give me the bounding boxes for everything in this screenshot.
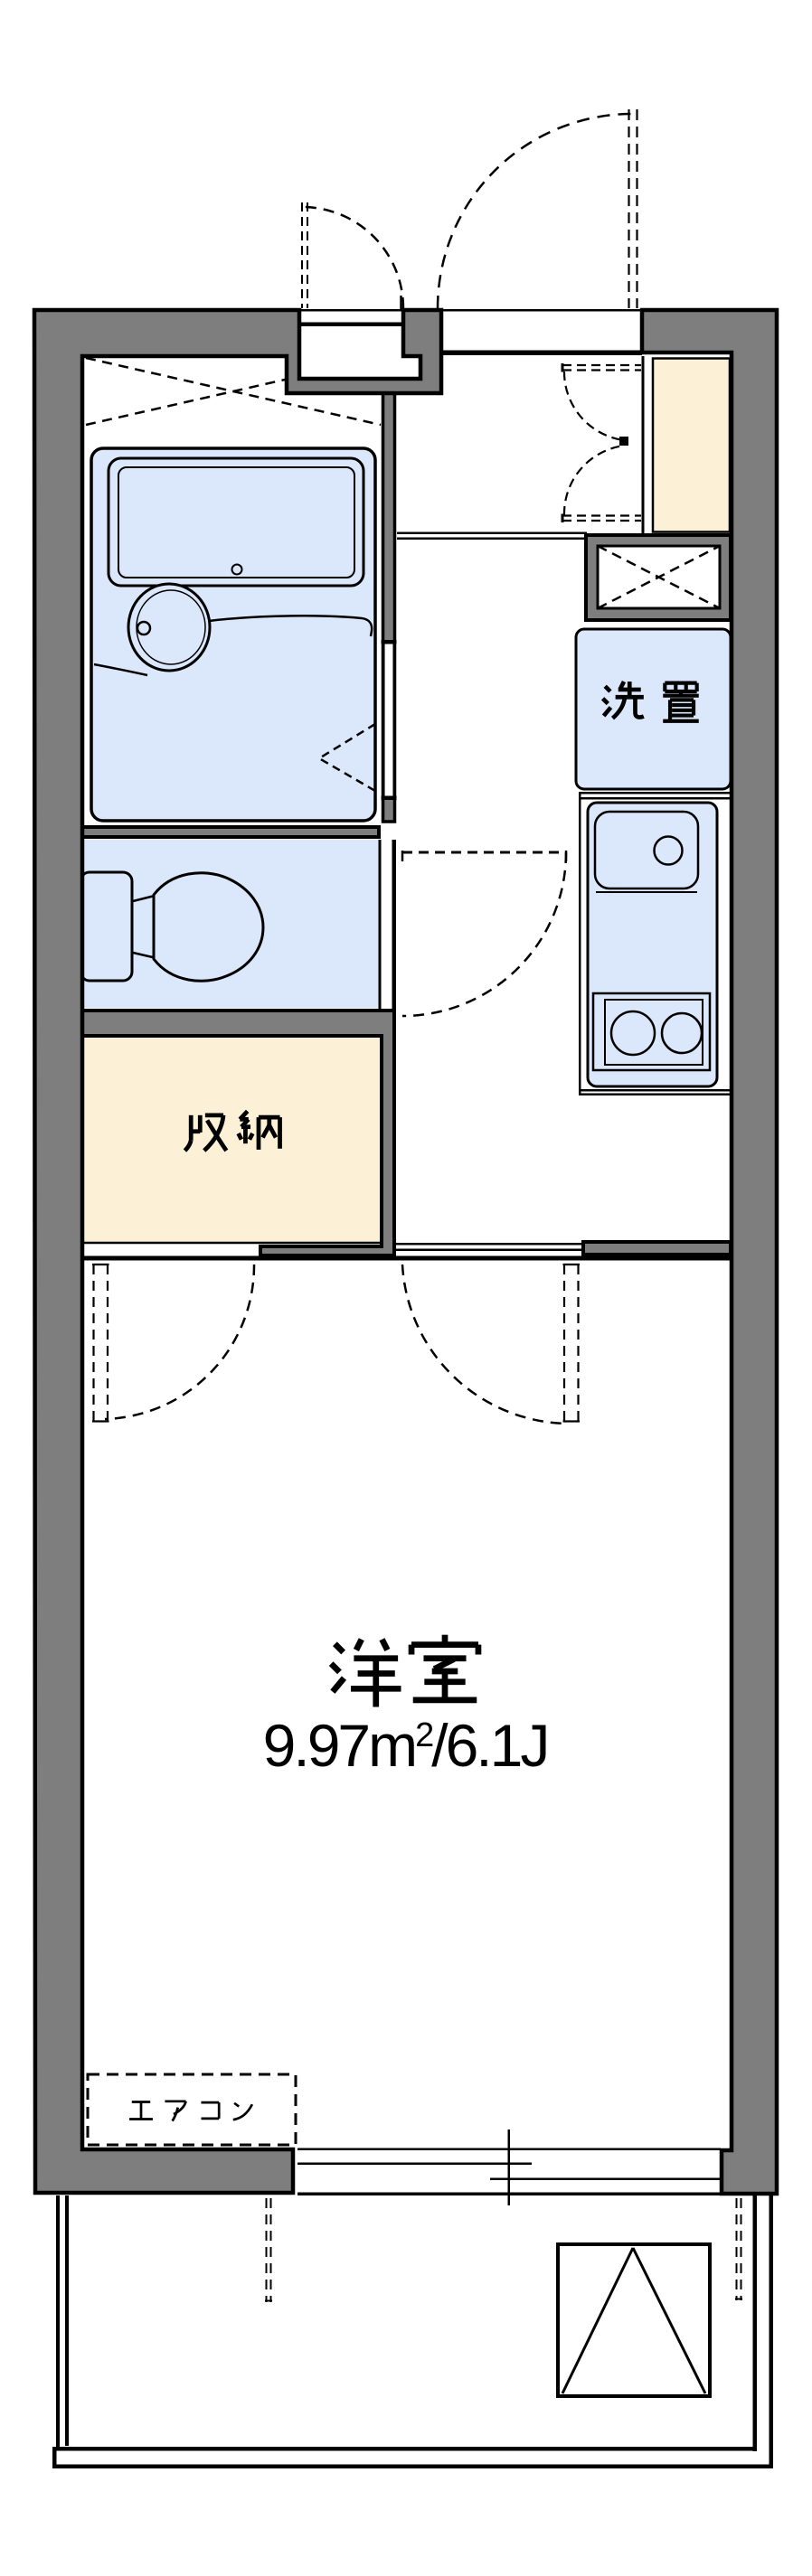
svg-text:9.97m2/6.1J: 9.97m2/6.1J [263,1712,548,1779]
